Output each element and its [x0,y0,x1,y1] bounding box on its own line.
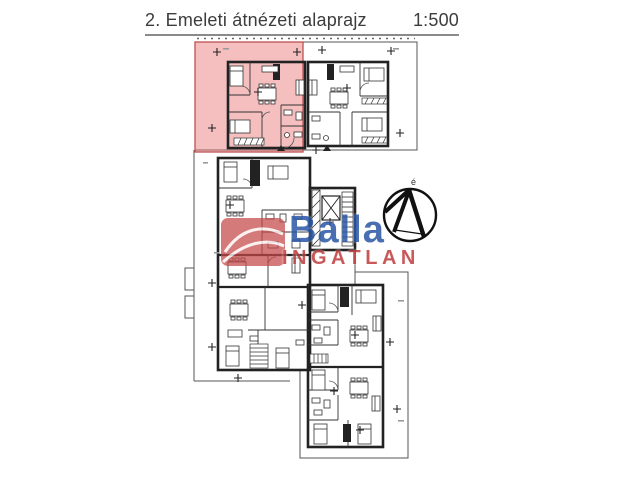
floorplan-drawing: é [0,0,640,480]
middle-column-furniture [224,160,304,368]
svg-text:é: é [411,177,416,187]
north-arrow-icon: é [384,177,436,241]
stair-elevator-core [312,190,353,246]
floorplan-page: 2. Emeleti átnézeti alaprajz 1:500 [0,0,640,480]
unit-topright-furniture [309,64,387,143]
